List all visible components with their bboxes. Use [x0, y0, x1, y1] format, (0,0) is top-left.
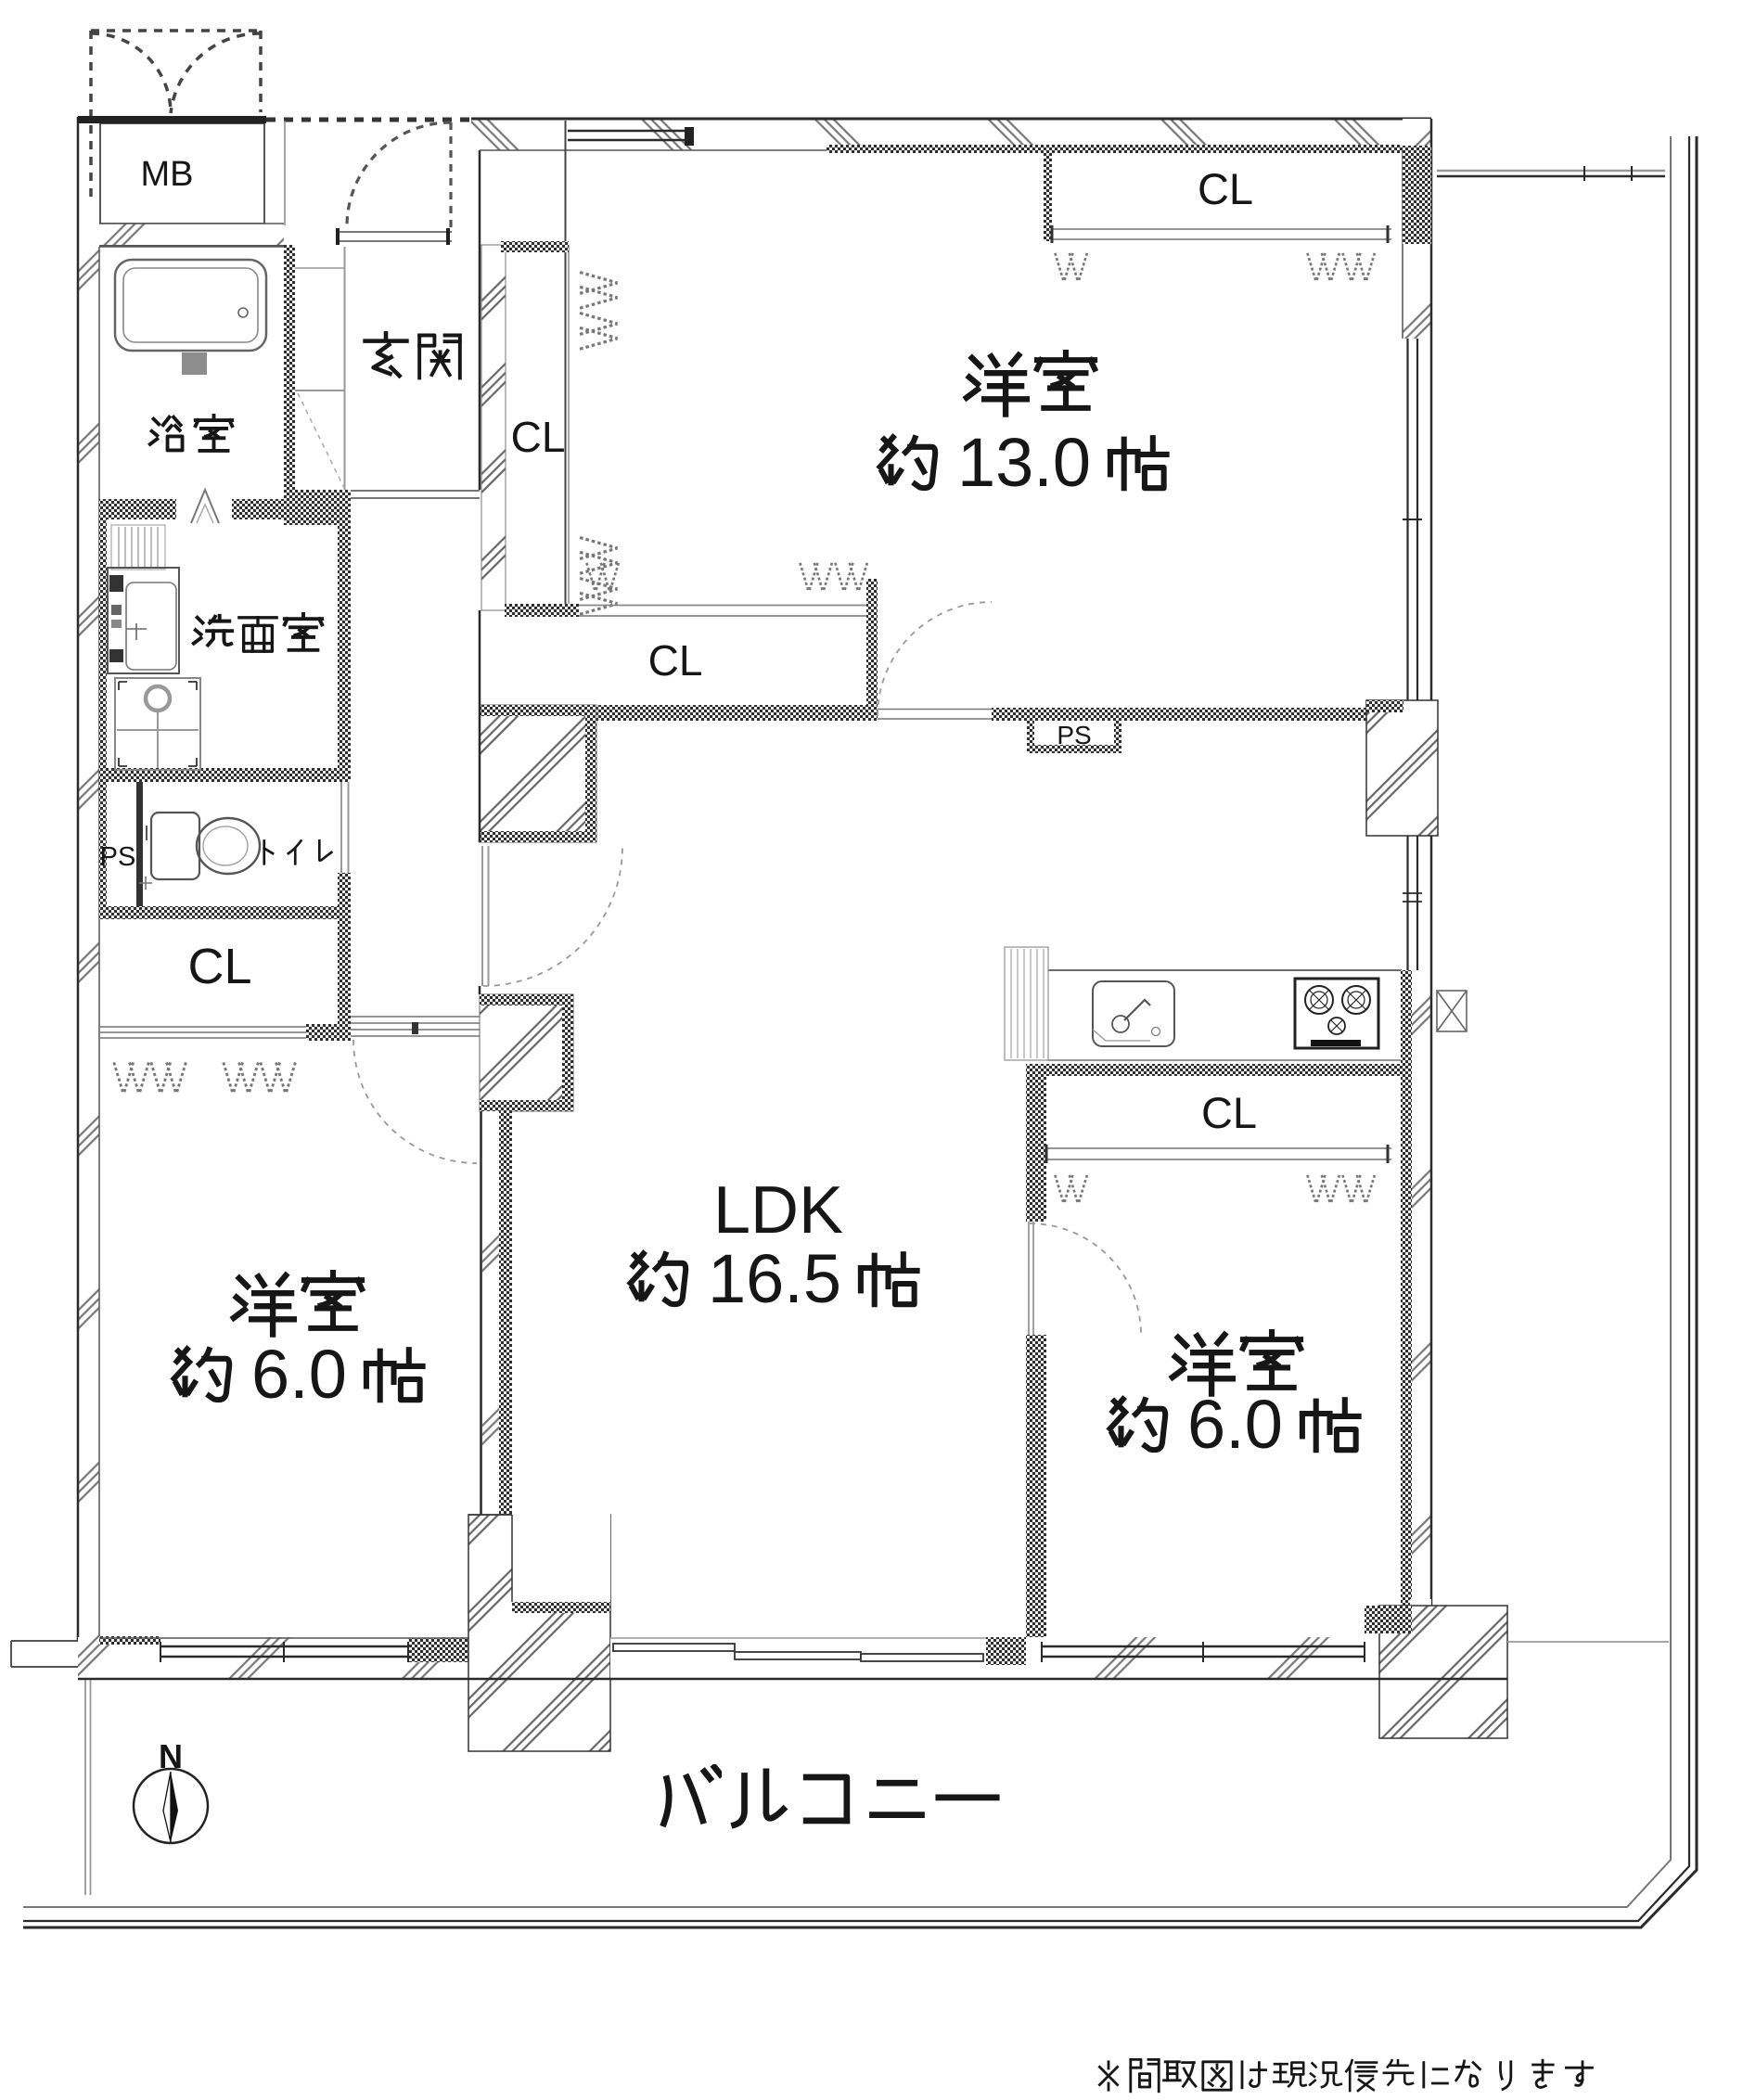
svg-text:CL: CL	[187, 939, 251, 994]
svg-text:CL: CL	[1198, 164, 1253, 213]
svg-text:CL: CL	[511, 413, 566, 461]
svg-text:16.5: 16.5	[708, 1240, 841, 1317]
svg-text:13.0: 13.0	[957, 424, 1091, 501]
svg-text:PS: PS	[100, 842, 136, 872]
svg-text:6.0: 6.0	[1187, 1386, 1283, 1463]
svg-text:PS: PS	[1057, 721, 1091, 749]
svg-text:N: N	[159, 1737, 183, 1775]
svg-text:MB: MB	[141, 155, 194, 194]
svg-text:LDK: LDK	[713, 1173, 843, 1248]
svg-text:6.0: 6.0	[251, 1336, 347, 1413]
svg-text:CL: CL	[648, 636, 703, 685]
svg-text:CL: CL	[1201, 1088, 1257, 1137]
